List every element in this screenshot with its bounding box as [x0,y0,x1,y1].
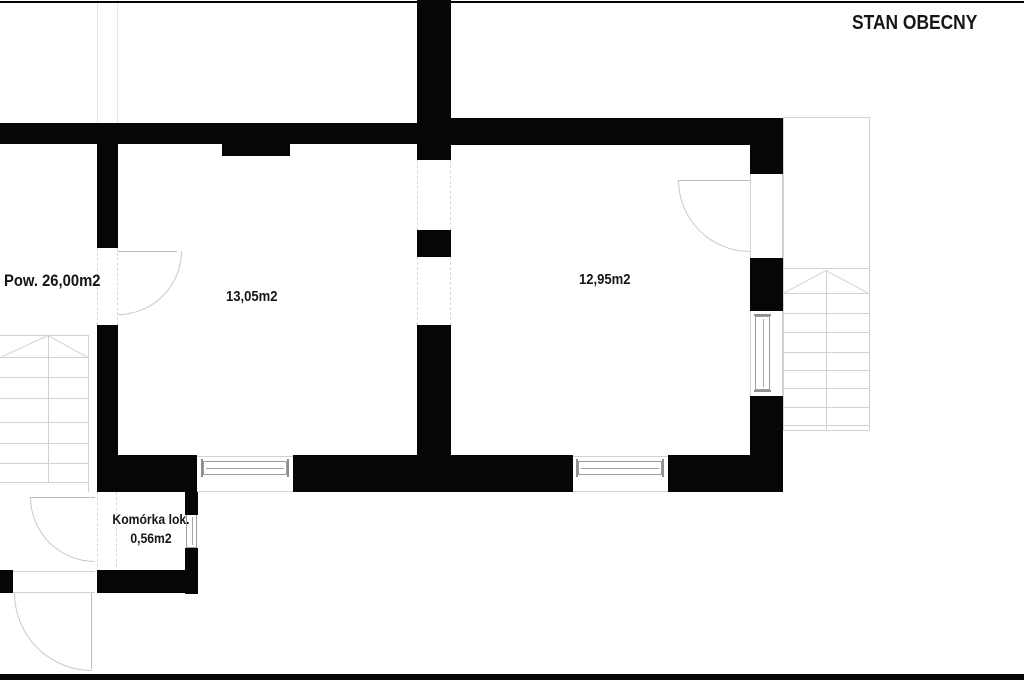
jamb-line [750,174,751,258]
wall-bottom-3 [668,455,783,492]
window-symbol [755,316,770,390]
stairs-left-winder-line [0,335,49,358]
wall-left-upper [97,144,118,248]
storage-door-swing-arc [30,497,95,562]
window-glazing-line [581,468,659,469]
wall-top-right [417,118,750,145]
wall-top-ledge [222,144,290,156]
window-end-cap [576,459,578,477]
exterior-area-label: Pow. 26,00m2 [4,271,100,291]
exterior-door-swing-arc [14,593,92,671]
wall-right-middle [750,258,783,311]
room-right-area-label: 12,95m2 [579,271,631,288]
window-end-cap [754,390,771,392]
window-symbol [578,461,662,475]
window-end-cap [201,459,203,477]
porch-outline-top [783,117,870,118]
stair-step-line [0,377,88,378]
storage-label: Komórka lok. 0,56m2 [109,510,193,548]
door-swing-arc [678,180,750,252]
stairs-left-divider [48,335,49,483]
porch-outline-bottom [783,430,870,431]
stair-step-line [0,357,88,358]
jamb-line [197,491,293,492]
projection-line [97,0,98,123]
jamb-line [13,571,95,572]
floor-plan: STAN OBECNY Pow. 26,00m2 13,05m2 12,95m2… [0,0,1024,680]
jamb-line [197,456,293,457]
stair-step-line [0,398,88,399]
stairs-right-winder-line [826,270,870,294]
wall-bottom-2 [293,455,573,492]
wall-top-left [0,123,417,144]
storage-doorway-edge [97,492,98,567]
jamb-line [782,174,783,258]
opening-edge [450,257,451,325]
opening-edge [417,257,418,325]
storage-name: Komórka lok. [109,510,193,529]
porch-outline-left [783,117,784,430]
opening-edge [417,160,418,230]
storage-wall-bottom [97,570,198,593]
jamb-line [782,311,783,396]
stairs-right-top-line [783,268,870,269]
wall-bottom-1 [97,455,197,492]
wall-top-edge-line [0,1,1024,3]
drawing-title: STAN OBECNY [852,12,977,35]
jamb-line [750,311,751,396]
window-glazing-line [206,468,284,469]
stairs-left-right-edge [88,335,89,492]
stair-step-line [0,482,88,483]
wall-bottom-edge-band [0,674,1024,680]
door-swing-arc [118,251,182,315]
window-end-cap [287,459,289,477]
window-glazing-line [763,319,764,387]
jamb-line [573,456,668,457]
stairs-right-winder-line [783,270,827,294]
window-end-cap [662,459,664,477]
stair-step-line [0,422,88,423]
window-end-cap [754,314,771,316]
storage-area: 0,56m2 [109,529,193,548]
window-symbol [203,461,287,475]
stairs-right-divider [826,270,827,430]
porch-outline-right [869,117,870,430]
opening-edge [450,160,451,230]
stairs-left-winder-line [48,335,89,358]
stair-step-line [0,443,88,444]
stair-step-line [0,463,88,464]
wall-middle-top [417,0,451,160]
room-left-area-label: 13,05m2 [226,288,278,305]
wall-middle-post [417,230,451,257]
jamb-line [573,491,668,492]
wall-stub-bottom-left [0,570,13,593]
wall-right-upper [750,118,783,174]
projection-line [117,0,118,123]
